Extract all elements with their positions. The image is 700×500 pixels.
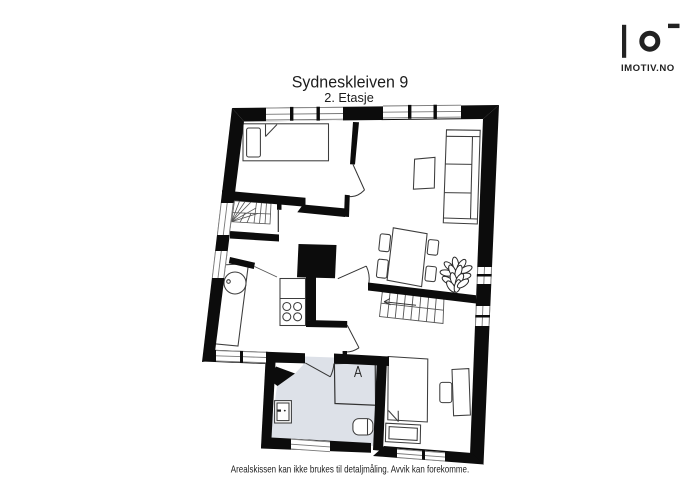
svg-text:Arealskissen kan ikke brukes t: Arealskissen kan ikke brukes til detaljm… [231, 464, 469, 475]
svg-text:2. Etasje: 2. Etasje [324, 90, 374, 105]
svg-text:Sydneskleiven 9: Sydneskleiven 9 [292, 73, 409, 91]
svg-text:IMOTIV.NO: IMOTIV.NO [621, 63, 675, 74]
